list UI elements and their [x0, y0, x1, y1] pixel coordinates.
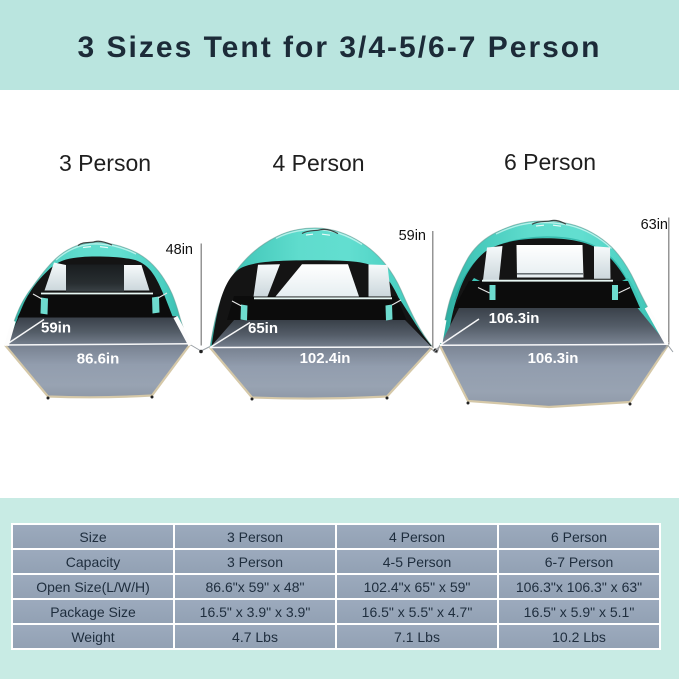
svg-text:3 Person: 3 Person: [59, 150, 151, 176]
svg-text:59in: 59in: [399, 228, 426, 244]
svg-text:4 Person: 4 Person: [272, 150, 364, 176]
svg-text:106.3in: 106.3in: [489, 310, 540, 327]
svg-text:65in: 65in: [248, 320, 278, 337]
svg-text:106.3in: 106.3in: [528, 350, 579, 367]
svg-text:6 Person: 6 Person: [504, 149, 596, 175]
svg-text:86.6in: 86.6in: [77, 351, 120, 368]
svg-text:63in: 63in: [641, 217, 668, 233]
svg-text:59in: 59in: [41, 320, 71, 337]
svg-text:102.4in: 102.4in: [300, 350, 351, 367]
svg-text:48in: 48in: [166, 242, 193, 258]
